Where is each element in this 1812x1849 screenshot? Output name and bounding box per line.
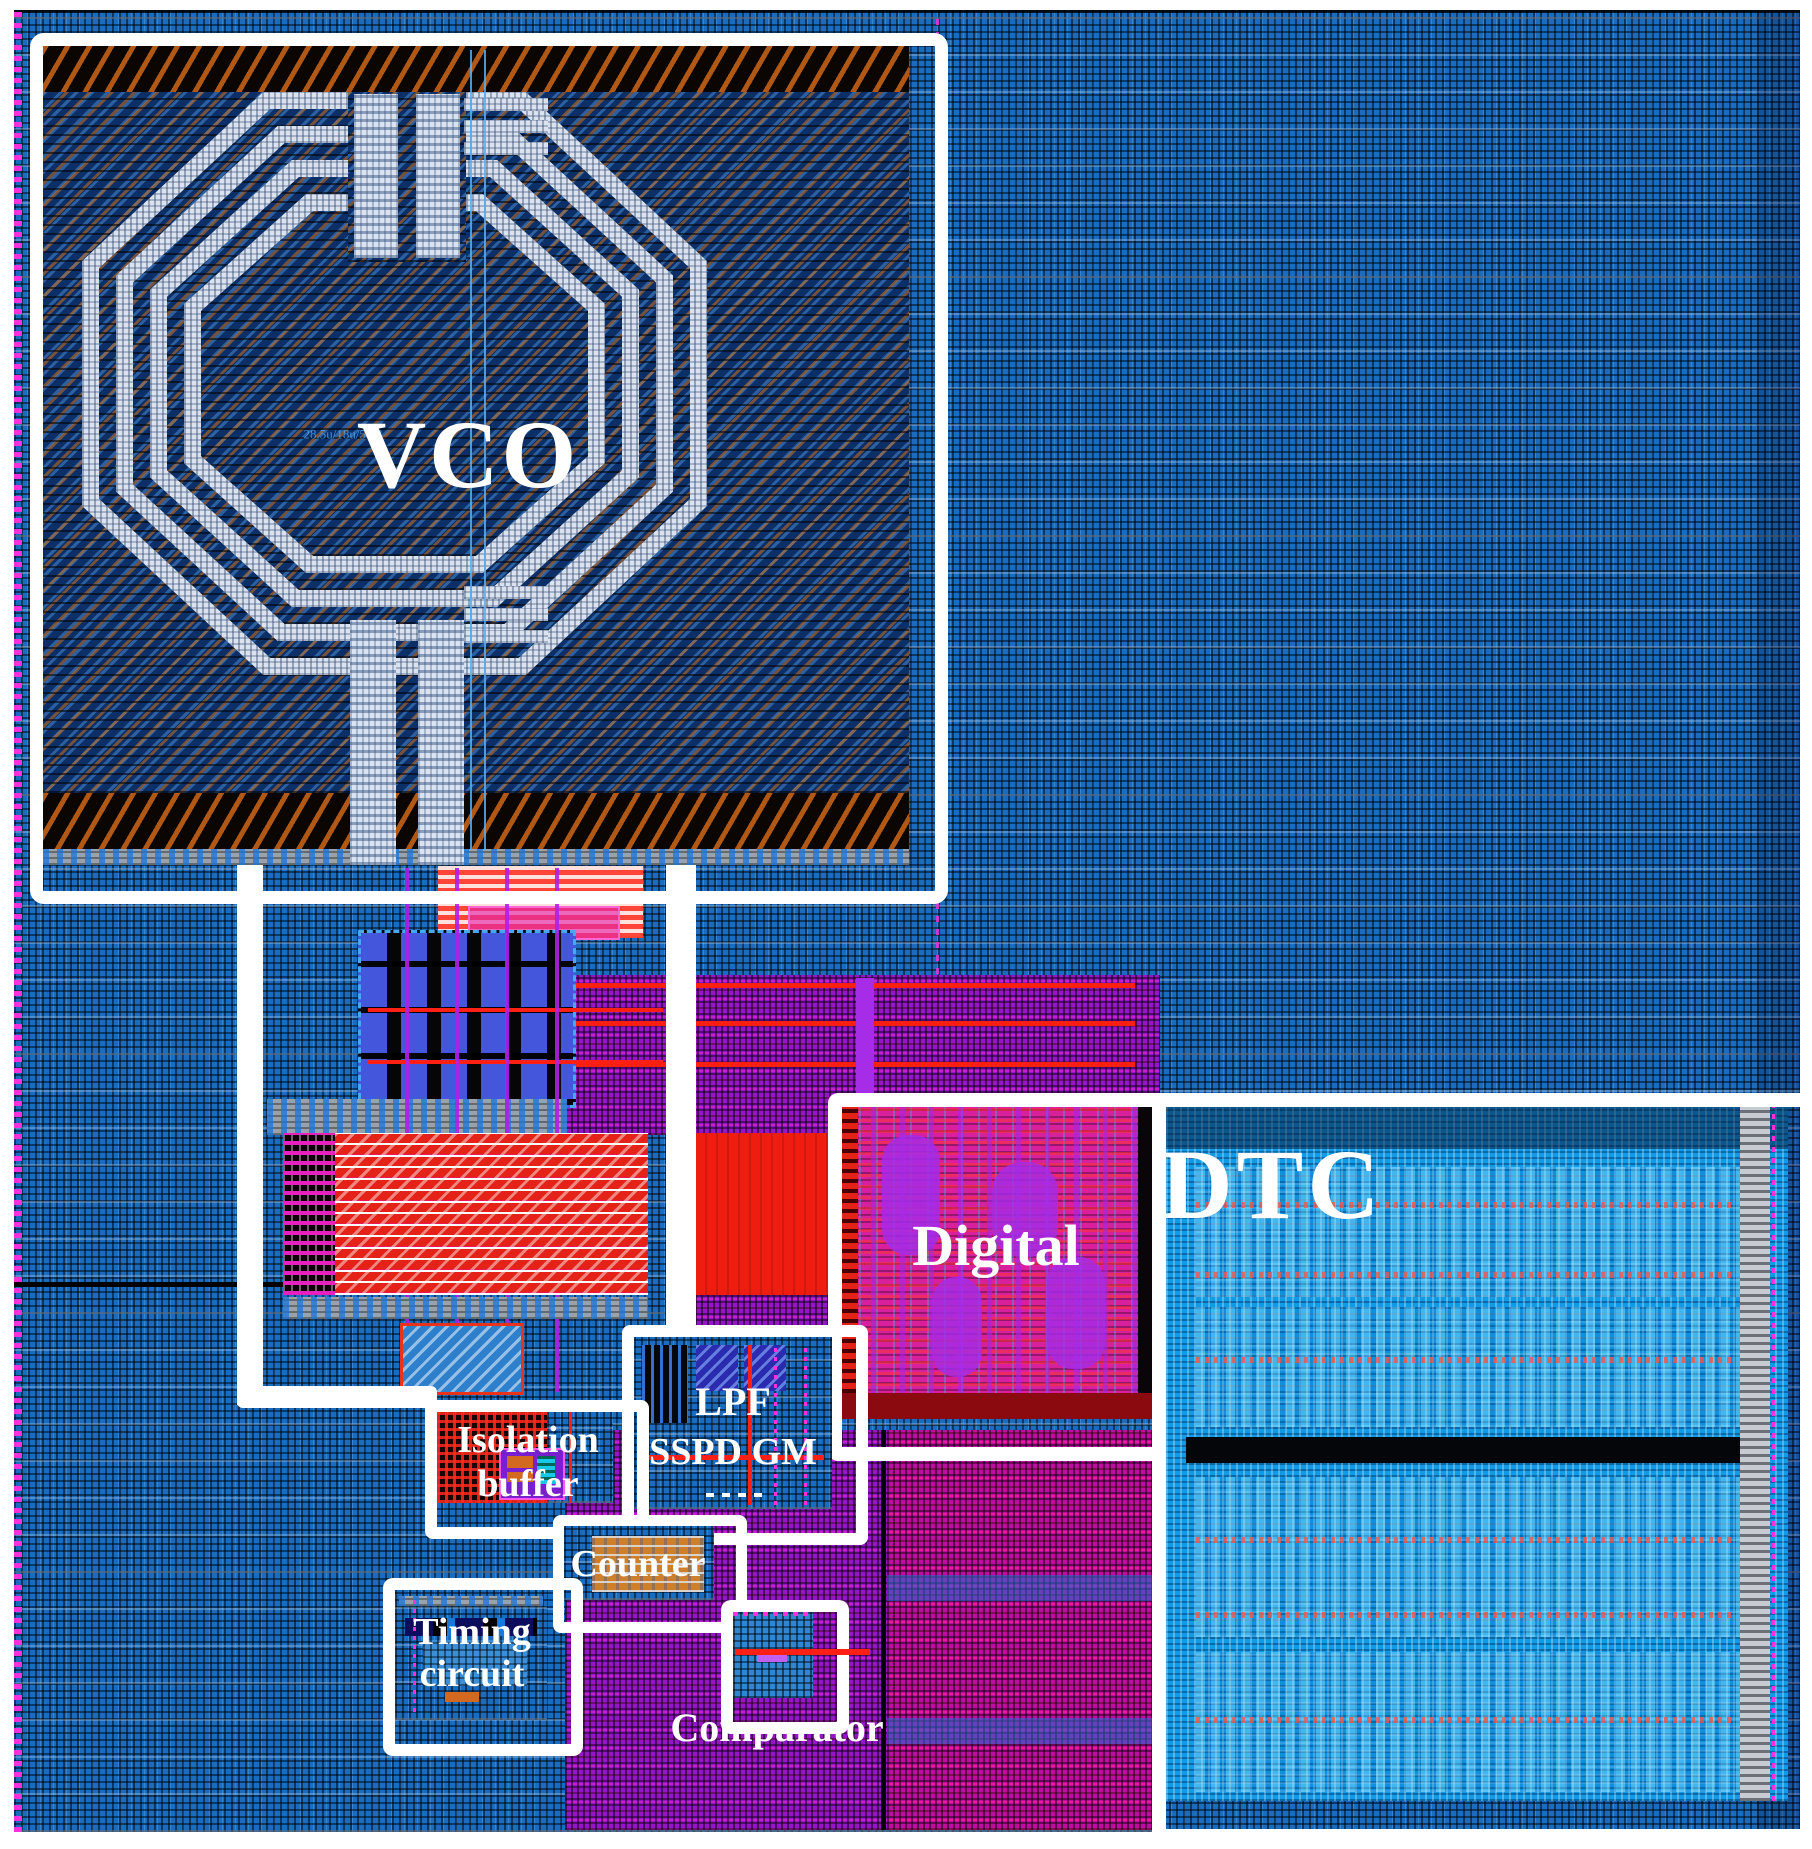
red-wire: [368, 1060, 663, 1064]
vco-outline-right-bar: [666, 865, 696, 1337]
digital-bottom-band: [842, 1393, 1154, 1419]
vco-strap-band: [43, 849, 909, 865]
black-divider-line: [881, 1430, 886, 1830]
cap-bank-block: [335, 1133, 648, 1295]
comparator-magenta-dots: [733, 1612, 813, 1616]
isolation-label-line2: buffer: [477, 1465, 578, 1503]
digital-label: Digital: [912, 1217, 1080, 1275]
lpf-white-dashes: [706, 1493, 762, 1497]
crossover-bar: [464, 586, 548, 599]
metal-strap-band: [267, 1099, 567, 1135]
inductor-tail-stub: [418, 620, 464, 865]
timing-label-line1: Timing: [413, 1613, 531, 1651]
isolation-label-line1: Isolation: [457, 1421, 598, 1459]
crossover-bar: [464, 630, 548, 643]
dtc-red-speckle-row: [1196, 1272, 1736, 1278]
crossover-bar: [464, 608, 548, 621]
crossover-bar: [464, 98, 548, 111]
chip-layout-figure: 28.5u/18u/5u/3: [0, 0, 1812, 1849]
dtc-black-band: [1186, 1437, 1741, 1463]
purple-region-blue-band: [887, 1575, 1160, 1601]
vco-seal-band-bottom: [43, 793, 909, 849]
inductor-feed-stub: [354, 94, 398, 258]
dtc-magenta-dot-line: [1772, 1107, 1775, 1801]
red-wire: [368, 1008, 663, 1012]
purple-region-blue-band: [887, 1718, 1160, 1744]
lpf-magenta-dots: [774, 1345, 777, 1505]
lower-right-purple-region: [887, 1430, 1160, 1830]
vco-label: VCO: [357, 407, 579, 503]
dtc-red-speckle-row: [1196, 1357, 1736, 1363]
dtc-label: DTC: [1160, 1135, 1383, 1235]
counter-label: Counter: [570, 1545, 705, 1583]
inductor-feed-stub: [416, 94, 460, 258]
dtc-red-speckle-row: [1196, 1537, 1736, 1543]
lpf-red-wire-v: [748, 1345, 752, 1505]
timing-label-line2: circuit: [420, 1655, 525, 1693]
vco-seal-band-top: [43, 46, 909, 92]
lpf-label: LPF: [695, 1382, 771, 1422]
comparator-label: Comparator: [670, 1708, 883, 1748]
timing-strap-row: [399, 1596, 543, 1606]
comparator-purple-mark: [757, 1654, 787, 1662]
dtc-red-speckle-row: [1196, 1612, 1736, 1618]
dtc-red-speckle-row: [1196, 1717, 1736, 1723]
digital-blob: [932, 1277, 982, 1377]
output-buffer-cell: [400, 1323, 524, 1395]
crossover-bar: [464, 142, 548, 155]
cap-bank-edge-strip: [283, 1133, 335, 1295]
comparator-interior: [733, 1612, 813, 1698]
lpf-magenta-dots: [804, 1345, 807, 1505]
comparator-red-wire: [735, 1649, 870, 1655]
vco-outline-bottom-bar: [237, 1386, 437, 1408]
buffer-cell-array: [358, 930, 576, 1108]
chip-top-edge-line: [14, 10, 1800, 13]
dtc-cell-row: [1196, 1307, 1741, 1427]
red-rail: [572, 1021, 1135, 1026]
inductor-tail-stub: [350, 620, 396, 865]
crossover-bar: [464, 120, 548, 133]
red-metal-block: [694, 1133, 828, 1295]
red-rail: [572, 983, 1135, 988]
sspd-gm-label: SSPD GM: [649, 1433, 817, 1471]
metal-strap-band: [283, 1297, 648, 1319]
vco-outline-left-bar: [237, 865, 263, 1405]
dtc-right-gray-column: [1740, 1107, 1770, 1801]
chip-left-edge-dashes: [14, 10, 22, 1832]
